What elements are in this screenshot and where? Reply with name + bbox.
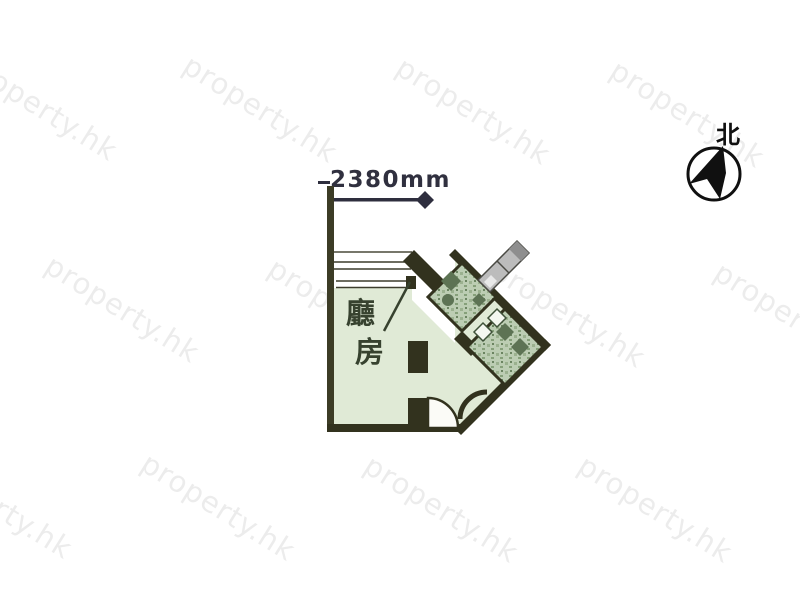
dimension-arrow xyxy=(416,191,434,209)
floor-plan-drawing: 2380mm xyxy=(0,0,800,600)
toilet-fixture xyxy=(442,294,454,306)
dimension-label: 2380mm xyxy=(330,167,451,193)
left-wall xyxy=(327,186,334,432)
compass-north-label: 北 xyxy=(716,121,740,149)
dimension-annotation: 2380mm xyxy=(318,167,451,209)
room-label-bed: 房 xyxy=(355,335,384,369)
room-label-living: 廳 xyxy=(346,296,375,330)
compass: 北 xyxy=(688,121,740,200)
door-jamb-upper xyxy=(408,341,428,373)
door-jamb-lower xyxy=(408,398,427,426)
ac-duct xyxy=(478,241,529,292)
floor-plan-scan: property.hkproperty.hkproperty.hkpropert… xyxy=(0,0,800,600)
dimension-line xyxy=(334,198,426,202)
dimension-tick xyxy=(318,181,330,184)
